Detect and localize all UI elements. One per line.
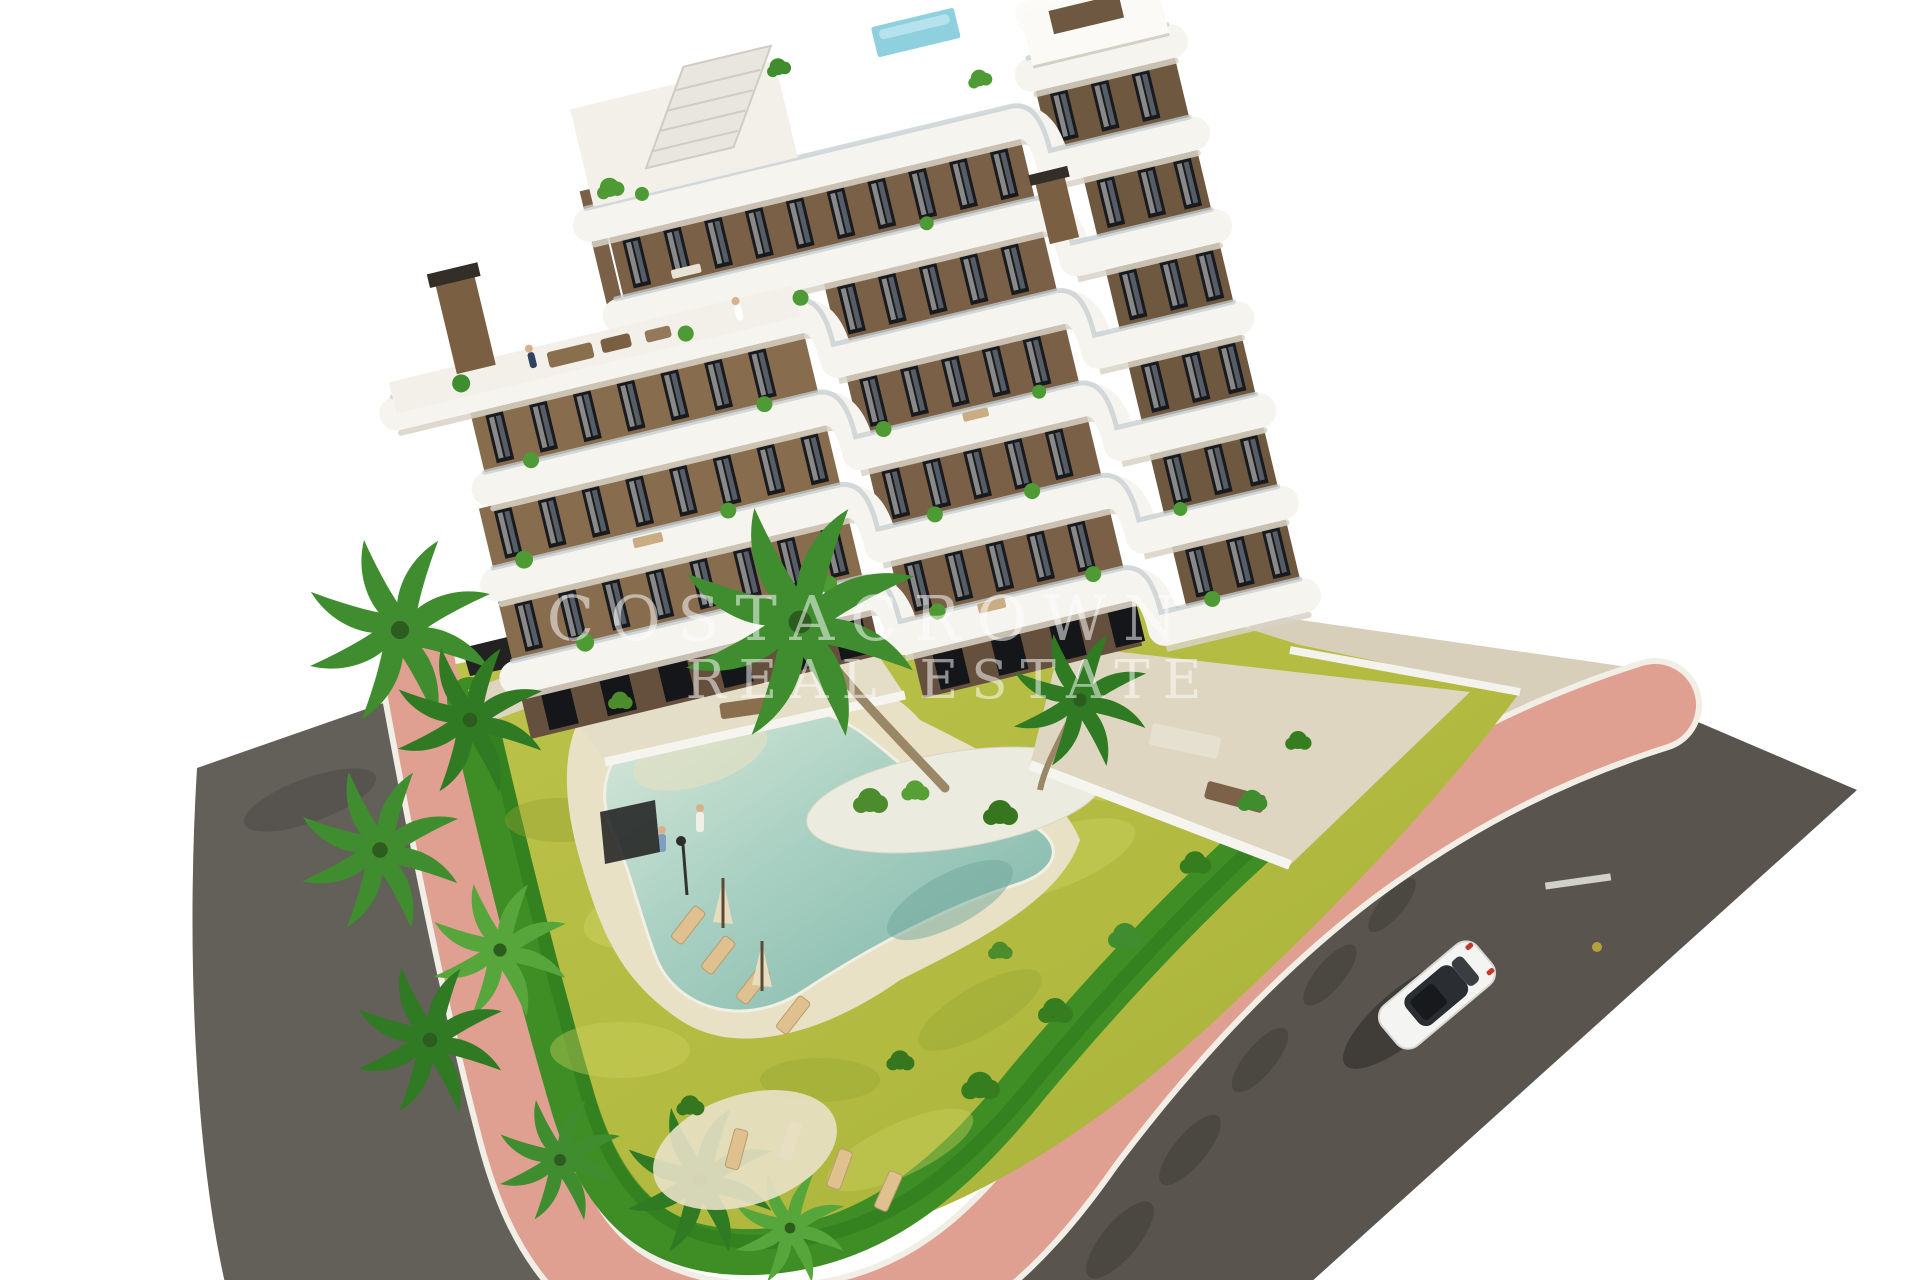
render-canvas: COSTACROWN REAL ESTATE [0, 0, 1920, 1280]
watermark-line2: REAL ESTATE [686, 650, 1215, 711]
watermark-line1: COSTACROWN [547, 582, 1193, 655]
road-speck [1592, 942, 1602, 952]
architectural-render: COSTACROWN REAL ESTATE [0, 0, 1920, 1280]
